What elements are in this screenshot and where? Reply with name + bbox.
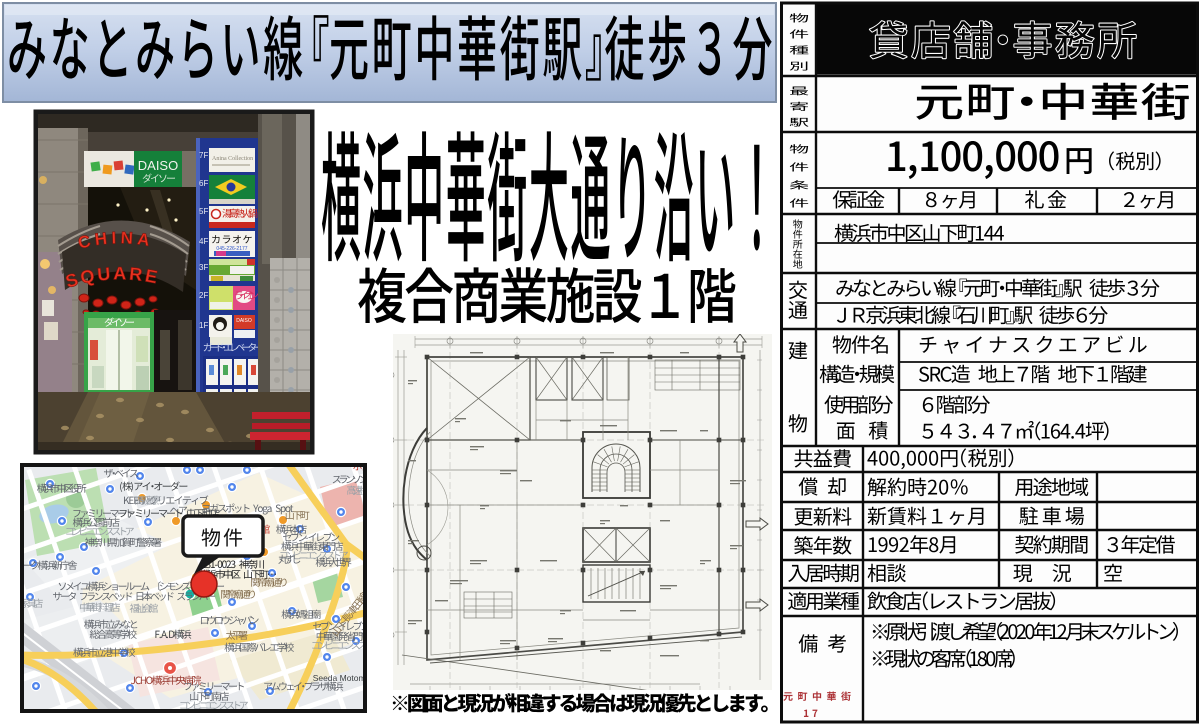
svg-text:6F: 6F (199, 179, 208, 188)
svg-text:Anina Collection: Anina Collection (212, 156, 253, 162)
svg-text:7F: 7F (199, 151, 208, 160)
svg-text:1F: 1F (199, 321, 208, 330)
svg-text:4F: 4F (199, 237, 208, 246)
svg-text:DAISO: DAISO (236, 318, 252, 324)
svg-text:DAISO: DAISO (138, 158, 178, 173)
svg-text:2F: 2F (199, 291, 208, 300)
svg-text:5F: 5F (199, 207, 208, 216)
svg-text:3F: 3F (199, 263, 208, 272)
